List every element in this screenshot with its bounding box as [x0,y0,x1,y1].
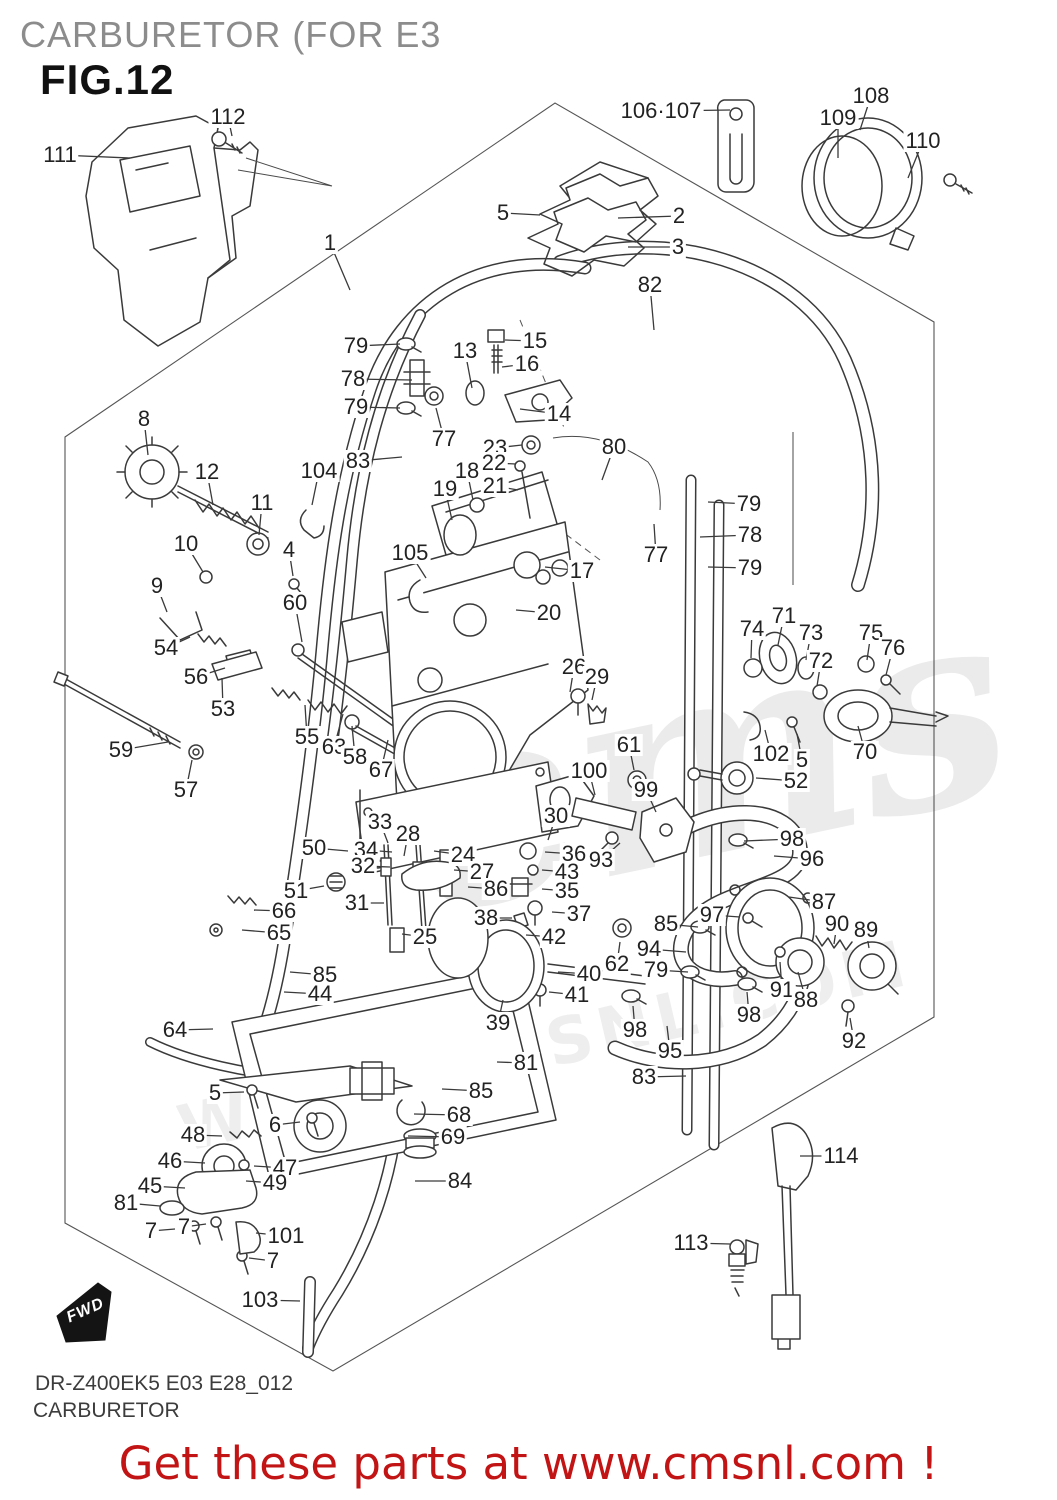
part-callout-95: 95 [656,1040,684,1062]
part-callout-2: 2 [671,205,687,227]
part-callout-22: 22 [480,452,508,474]
sheet-name: CARBURETOR [33,1399,180,1423]
part-callout-67: 67 [367,759,395,781]
part-callout-83: 83 [630,1066,658,1088]
part-callout-20: 20 [535,602,563,624]
part-callout-32: 32 [349,855,377,877]
part-callout-29: 29 [583,666,611,688]
part-callout-78: 78 [736,524,764,546]
parts-fiche-page: CARBURETOR (FOR E3 FIG.12 ems WWW.CMSNL.… [0,0,1057,1500]
part-callout-35: 35 [553,880,581,902]
part-callout-21: 21 [481,475,509,497]
part-callout-70: 70 [851,741,879,763]
part-callout-90: 90 [823,913,851,935]
part-callout-56: 56 [182,666,210,688]
part-callout-49: 49 [261,1172,289,1194]
part-callout-87: 87 [810,891,838,913]
part-callout-85: 85 [652,913,680,935]
part-callout-15: 15 [521,330,549,352]
part-callout-93: 93 [587,849,615,871]
part-callout-79: 79 [642,959,670,981]
part-callout-79: 79 [736,557,764,579]
part-callout-42: 42 [540,926,568,948]
part-callout-113: 113 [671,1232,710,1254]
part-callout-44: 44 [306,983,334,1005]
model-code: DR-Z400EK5 E03 E28_012 [35,1372,293,1396]
part-callout-6: 6 [267,1114,283,1136]
part-callout-110: 110 [903,130,942,152]
part-callout-86: 86 [482,878,510,900]
part-callout-109: 109 [818,107,859,129]
part-callout-114: 114 [821,1145,860,1167]
part-callout-102: 102 [751,743,792,765]
part-callout-16: 16 [513,353,541,375]
part-callout-79: 79 [342,335,370,357]
part-callout-25: 25 [411,926,439,948]
part-callout-82: 82 [636,274,664,296]
part-callout-71: 71 [770,605,798,627]
part-callout-77: 77 [430,428,458,450]
part-callout-73: 73 [797,622,825,644]
part-callout-5: 5 [207,1082,223,1104]
part-callout-48: 48 [179,1124,207,1146]
part-callout-89: 89 [852,919,880,941]
part-callout-52: 52 [782,770,810,792]
part-callout-84: 84 [446,1170,474,1192]
part-callout-83: 83 [344,450,372,472]
part-callout-79: 79 [342,396,370,418]
part-callout-7: 7 [176,1216,192,1238]
part-callout-46: 46 [156,1150,184,1172]
part-callout-103: 103 [240,1289,281,1311]
part-callout-17: 17 [568,560,596,582]
part-callout-104: 104 [299,460,340,482]
part-callout-99: 99 [632,779,660,801]
part-callout-19: 19 [431,478,459,500]
part-callout-4: 4 [281,539,297,561]
part-callout-66: 66 [270,900,298,922]
part-callout-10: 10 [172,533,200,555]
part-callout-53: 53 [209,698,237,720]
part-callout-7: 7 [265,1250,281,1272]
part-callout-111: 111 [41,144,78,166]
part-callout-5: 5 [495,202,511,224]
part-callout-39: 39 [484,1012,512,1034]
part-callout-7: 7 [143,1220,159,1242]
part-callout-81: 81 [512,1052,540,1074]
part-callout-77: 77 [642,544,670,566]
part-callout-81: 81 [112,1192,140,1214]
part-callout-88: 88 [792,989,820,1011]
part-callout-54: 54 [152,637,180,659]
part-callout-50: 50 [300,837,328,859]
part-callout-100: 100 [569,760,610,782]
part-callout-41: 41 [563,984,591,1006]
part-callout-101: 101 [266,1225,307,1247]
part-callout-30: 30 [542,805,570,827]
part-callout-9: 9 [149,575,165,597]
promo-banner: Get these parts at www.cmsnl.com ! [0,1437,1057,1490]
part-callout-96: 96 [798,848,826,870]
fwd-direction-marker: FWD [52,1280,116,1346]
part-callout-33: 33 [366,811,394,833]
part-callout-1: 1 [322,232,338,254]
part-callout-105: 105 [390,542,431,564]
part-callout-98: 98 [621,1019,649,1041]
part-callout-72: 72 [807,650,835,672]
part-callout-38: 38 [472,907,500,929]
part-callout-37: 37 [565,903,593,925]
part-callout-12: 12 [193,461,221,483]
part-callout-58: 58 [341,746,369,768]
part-callout-112: 112 [208,106,247,128]
part-callout-92: 92 [840,1030,868,1052]
part-callouts-layer: 1111121523106·10710810911082797879771315… [0,0,1057,1500]
part-callout-61: 61 [615,734,643,756]
part-callout-28: 28 [394,823,422,845]
part-callout-98: 98 [735,1004,763,1026]
part-callout-69: 69 [439,1126,467,1148]
part-callout-65: 65 [265,922,293,944]
part-callout-76: 76 [879,637,907,659]
part-callout-74: 74 [738,618,766,640]
part-callout-31: 31 [343,892,371,914]
part-callout-8: 8 [136,408,152,430]
part-callout-106·107: 106·107 [619,100,704,122]
part-callout-11: 11 [249,492,276,514]
part-callout-3: 3 [670,236,686,258]
part-callout-57: 57 [172,779,200,801]
part-callout-79: 79 [735,493,763,515]
part-callout-108: 108 [851,85,892,107]
part-callout-55: 55 [293,726,321,748]
part-callout-59: 59 [107,739,135,761]
part-callout-62: 62 [603,953,631,975]
part-callout-60: 60 [281,592,309,614]
part-callout-68: 68 [445,1104,473,1126]
part-callout-97: 97 [698,904,726,926]
part-callout-13: 13 [451,340,479,362]
part-callout-64: 64 [161,1019,189,1041]
part-callout-85: 85 [467,1080,495,1102]
part-callout-80: 80 [600,436,628,458]
part-callout-14: 14 [545,403,573,425]
part-callout-78: 78 [339,368,367,390]
